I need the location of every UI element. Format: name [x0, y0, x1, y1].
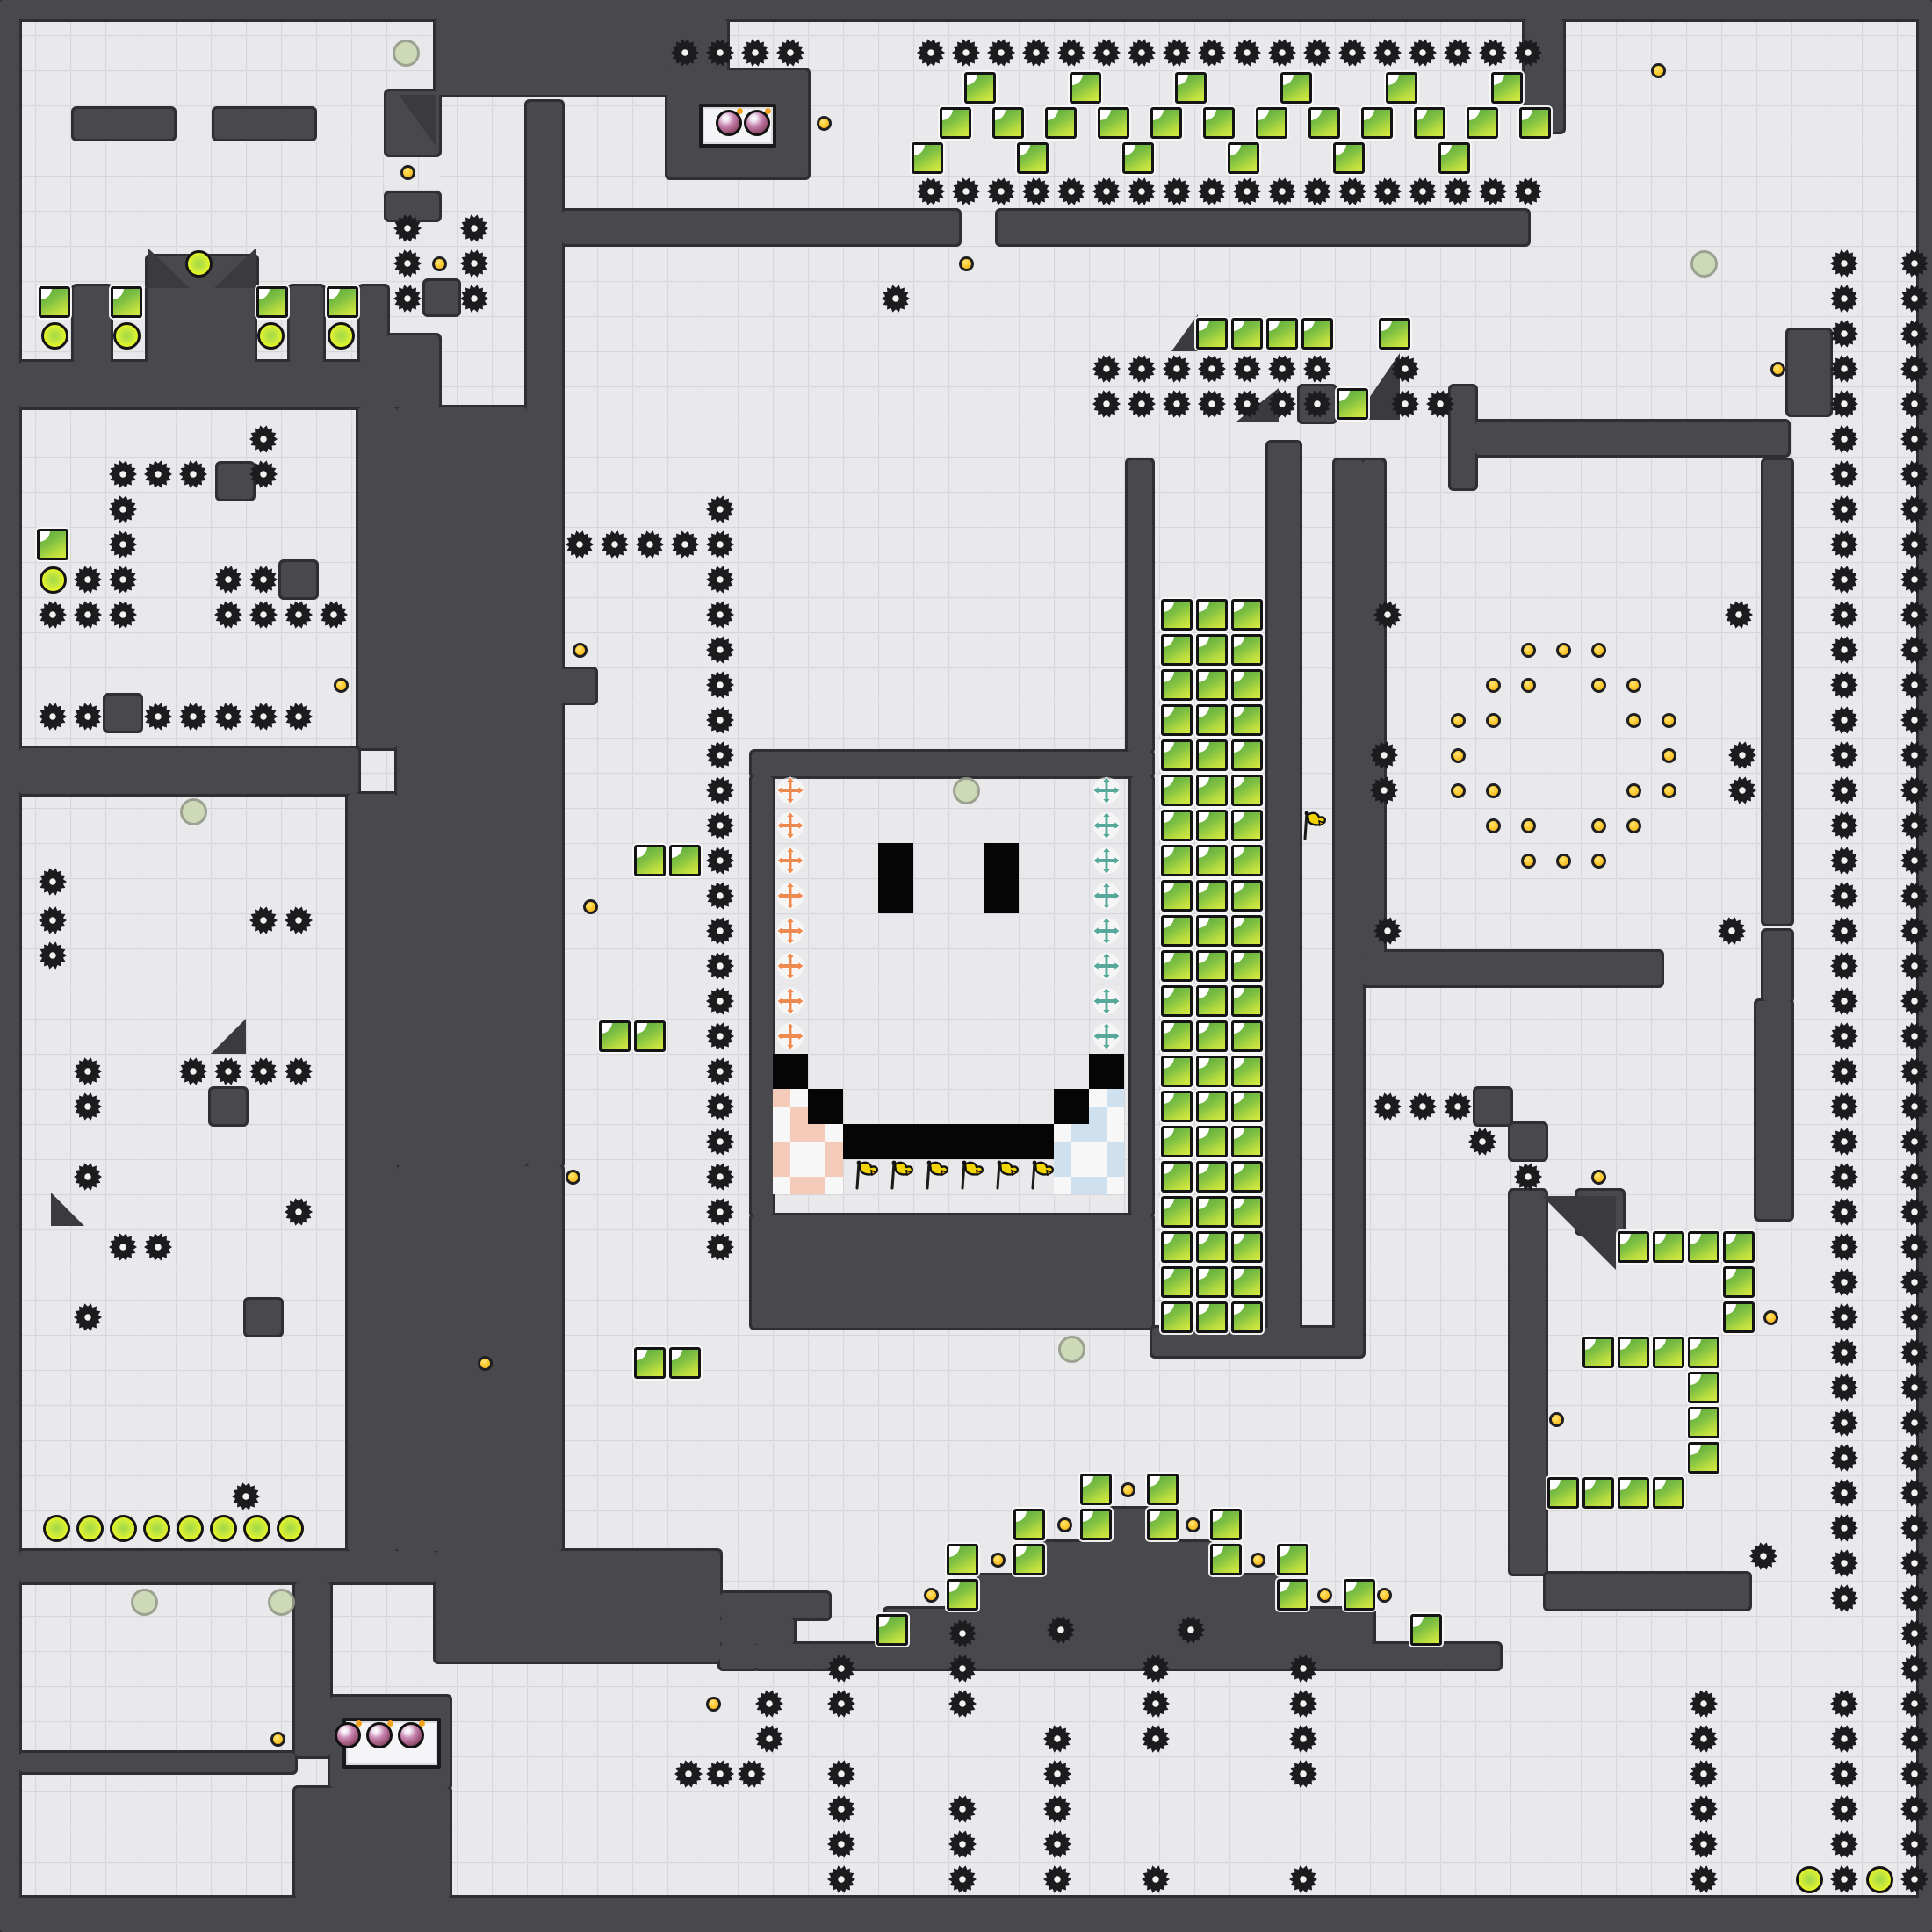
present-fold — [1198, 882, 1209, 893]
arrow-cross-teal-icon — [1092, 1021, 1121, 1051]
saw-blade-icon — [705, 600, 735, 630]
saw-blade-icon — [705, 1162, 735, 1192]
present-fold — [1163, 847, 1174, 858]
saw-blade-icon — [1829, 1127, 1859, 1157]
present-fold — [1338, 390, 1350, 401]
saw-blade-icon — [284, 1056, 314, 1086]
saw-blade-icon — [1900, 389, 1929, 419]
flag-icon — [1300, 810, 1331, 841]
present-box — [1582, 1477, 1614, 1509]
present-fold — [1345, 1581, 1357, 1592]
saw-blade-icon — [1232, 354, 1262, 384]
saw-blade-icon — [1829, 389, 1859, 419]
present-fold — [1268, 320, 1280, 331]
saw-blade-icon — [1829, 284, 1859, 314]
saw-blade-icon — [1829, 1267, 1859, 1297]
present-box — [1196, 775, 1228, 806]
present-box — [1203, 107, 1235, 139]
present-box — [1196, 880, 1228, 912]
present-fold — [1233, 601, 1244, 612]
present-fold — [1163, 952, 1174, 963]
checker-tile — [1054, 1159, 1089, 1194]
present-fold — [258, 288, 270, 299]
present-box — [1688, 1231, 1719, 1263]
present-box — [1210, 1544, 1242, 1575]
present-box — [1161, 1161, 1193, 1193]
saw-blade-icon — [948, 1829, 977, 1859]
big-coin — [40, 566, 67, 594]
present-fold — [1198, 952, 1209, 963]
saw-blade-icon — [670, 530, 700, 559]
arrow-cross-orange-icon — [775, 1021, 805, 1051]
checker-tile — [1054, 1124, 1089, 1159]
saw-blade-icon — [1829, 1373, 1859, 1402]
present-box — [669, 845, 701, 876]
saw-blade-icon — [459, 284, 489, 314]
big-coin — [185, 250, 213, 278]
coin — [583, 899, 598, 914]
present-box — [1491, 72, 1523, 104]
saw-blade-icon — [1900, 1864, 1929, 1894]
wall — [358, 407, 397, 748]
checker-tile — [773, 1159, 808, 1194]
present-fold — [1152, 109, 1164, 120]
coin — [1186, 1517, 1200, 1532]
saw-blade-icon — [1829, 1689, 1859, 1719]
arrow-cross-orange-icon — [775, 811, 805, 840]
saw-blade-icon — [1373, 1092, 1402, 1121]
coin — [1377, 1588, 1392, 1603]
saw-blade-icon — [826, 1864, 856, 1894]
present-fold — [941, 109, 953, 120]
saw-blade-icon — [38, 867, 68, 897]
present-box — [37, 529, 68, 560]
present-fold — [1619, 1233, 1631, 1244]
coin — [706, 1697, 721, 1712]
orb-spark-icon — [387, 1720, 393, 1727]
saw-blade-icon — [1900, 775, 1929, 805]
present-box — [1196, 810, 1228, 841]
saw-blade-icon — [231, 1481, 261, 1511]
present-fold — [1310, 109, 1322, 120]
present-fold — [601, 1022, 612, 1034]
present-fold — [1654, 1233, 1666, 1244]
saw-blade-icon — [1900, 1583, 1929, 1613]
saw-blade-icon — [178, 702, 208, 732]
saw-blade-icon — [1900, 1408, 1929, 1438]
wall — [281, 562, 316, 597]
present-fold — [1229, 144, 1241, 155]
saw-blade-icon — [1829, 1548, 1859, 1578]
coin — [1486, 818, 1501, 833]
present-box — [327, 286, 358, 318]
present-box — [1308, 107, 1340, 139]
present-box — [1196, 950, 1228, 982]
saw-blade-icon — [1900, 424, 1929, 454]
saw-blade-icon — [393, 284, 422, 314]
saw-blade-icon — [1829, 705, 1859, 735]
present-fold — [1198, 741, 1209, 753]
saw-blade-icon — [1373, 600, 1402, 630]
black-tile — [1054, 1089, 1089, 1124]
saw-blade-icon — [1337, 38, 1367, 68]
present-box — [1196, 1161, 1228, 1193]
present-box — [1161, 634, 1193, 666]
saw-blade-icon — [1042, 1759, 1072, 1789]
present-fold — [1690, 1444, 1701, 1455]
present-box — [1277, 1544, 1308, 1575]
black-tile — [1089, 1054, 1124, 1089]
saw-blade-icon — [1900, 249, 1929, 278]
present-box — [947, 1579, 978, 1611]
wall — [218, 464, 253, 499]
saw-blade-icon — [1829, 1337, 1859, 1367]
saw-blade-icon — [1176, 1615, 1206, 1645]
saw-blade-icon — [1829, 1408, 1859, 1438]
saw-blade-icon — [38, 600, 68, 630]
saw-blade-icon — [38, 905, 68, 935]
present-fold — [1233, 847, 1244, 858]
coin — [1556, 854, 1571, 869]
saw-blade-icon — [986, 38, 1016, 68]
saw-blade-icon — [1829, 1478, 1859, 1508]
saw-blade-icon — [1267, 177, 1297, 206]
present-fold — [1071, 74, 1083, 85]
arrow-cross-orange-icon — [775, 775, 805, 805]
present-box — [1723, 1266, 1755, 1298]
saw-blade-icon — [108, 1232, 138, 1262]
saw-blade-icon — [1724, 600, 1754, 630]
present-fold — [1690, 1233, 1701, 1244]
present-box — [1196, 1126, 1228, 1157]
spawn-circle — [953, 777, 980, 804]
saw-blade-icon — [1141, 1689, 1171, 1719]
present-fold — [1205, 109, 1216, 120]
saw-blade-icon — [1232, 177, 1262, 206]
present-fold — [1047, 109, 1058, 120]
saw-blade-icon — [1900, 565, 1929, 595]
coin — [1521, 643, 1536, 658]
present-box — [1231, 880, 1263, 912]
wall — [74, 109, 174, 139]
saw-blade-icon — [213, 600, 243, 630]
saw-blade-icon — [73, 1162, 103, 1192]
saw-blade-icon — [393, 213, 422, 243]
present-fold — [1493, 74, 1504, 85]
present-box — [1723, 1231, 1755, 1263]
present-fold — [1163, 601, 1174, 612]
present-box — [599, 1020, 631, 1052]
checker-tile — [773, 1124, 808, 1159]
present-box — [1379, 318, 1410, 350]
present-fold — [1233, 987, 1244, 998]
present-box — [1210, 1509, 1242, 1540]
saw-blade-icon — [249, 565, 278, 595]
present-box — [1122, 142, 1154, 174]
present-box — [1080, 1509, 1112, 1540]
present-fold — [1690, 1409, 1701, 1420]
saw-blade-icon — [1829, 249, 1859, 278]
present-box — [256, 286, 288, 318]
present-fold — [1163, 917, 1174, 928]
arrow-cross-orange-icon — [775, 986, 805, 1016]
saw-blade-icon — [1288, 1759, 1318, 1789]
present-box — [1196, 599, 1228, 631]
saw-blade-icon — [1829, 986, 1859, 1016]
saw-blade-icon — [916, 38, 946, 68]
present-fold — [1163, 1057, 1174, 1069]
saw-blade-icon — [1900, 1443, 1929, 1473]
saw-blade-icon — [1748, 1541, 1778, 1571]
saw-blade-icon — [1900, 1513, 1929, 1543]
saw-blade-icon — [705, 1232, 735, 1262]
present-box — [1361, 107, 1393, 139]
wall — [397, 407, 527, 1166]
present-box — [1688, 1372, 1719, 1403]
present-box — [1301, 318, 1333, 350]
present-fold — [1619, 1479, 1631, 1490]
black-tile — [773, 1054, 808, 1089]
coin — [1626, 678, 1641, 693]
present-fold — [1177, 74, 1188, 85]
present-box — [669, 1347, 701, 1379]
present-fold — [1363, 109, 1374, 120]
saw-blade-icon — [674, 1759, 703, 1789]
saw-blade-icon — [881, 284, 911, 314]
saw-blade-icon — [213, 702, 243, 732]
saw-blade-icon — [1232, 38, 1262, 68]
present-box — [1266, 318, 1298, 350]
level-board[interactable] — [0, 0, 1932, 1932]
saw-blade-icon — [705, 670, 735, 700]
saw-blade-icon — [916, 177, 946, 206]
coin — [1651, 63, 1666, 78]
coin — [478, 1356, 493, 1371]
saw-blade-icon — [705, 846, 735, 876]
saw-blade-icon — [705, 635, 735, 665]
present-box — [1045, 107, 1077, 139]
wall — [0, 1898, 1932, 1932]
coin — [432, 256, 447, 271]
coin — [1486, 678, 1501, 693]
present-fold — [1149, 1510, 1160, 1522]
present-box — [1688, 1337, 1719, 1368]
present-fold — [1015, 1546, 1027, 1557]
present-fold — [1163, 776, 1174, 788]
big-coin — [210, 1515, 237, 1542]
coin — [1521, 854, 1536, 869]
present-fold — [1198, 671, 1209, 682]
coin — [924, 1588, 939, 1603]
present-fold — [1233, 1128, 1244, 1139]
saw-blade-icon — [565, 530, 595, 559]
present-fold — [1082, 1475, 1093, 1487]
present-box — [1161, 739, 1193, 771]
present-box — [1231, 950, 1263, 982]
saw-blade-icon — [705, 916, 735, 946]
present-box — [1618, 1231, 1649, 1263]
wall — [755, 1644, 1500, 1669]
saw-blade-icon — [826, 1759, 856, 1789]
present-fold — [1015, 1510, 1027, 1522]
present-fold — [1233, 1092, 1244, 1104]
saw-blade-icon — [1900, 705, 1929, 735]
present-box — [1013, 1509, 1045, 1540]
present-fold — [994, 109, 1006, 120]
saw-blade-icon — [1373, 916, 1402, 946]
present-fold — [1163, 1198, 1174, 1209]
present-fold — [1233, 952, 1244, 963]
present-box — [1161, 1196, 1193, 1228]
saw-blade-icon — [1197, 177, 1227, 206]
present-fold — [1019, 144, 1030, 155]
saw-blade-icon — [705, 38, 735, 68]
saw-blade-icon — [1829, 1864, 1859, 1894]
present-box — [1231, 1091, 1263, 1122]
saw-blade-icon — [1162, 38, 1192, 68]
present-fold — [1198, 1198, 1209, 1209]
saw-blade-icon — [705, 986, 735, 1016]
big-coin — [277, 1515, 304, 1542]
saw-blade-icon — [1829, 424, 1859, 454]
present-fold — [1198, 1233, 1209, 1244]
coin — [1626, 713, 1641, 728]
present-fold — [948, 1581, 960, 1592]
saw-blade-icon — [1900, 1618, 1929, 1648]
wall — [1363, 460, 1384, 955]
wall — [720, 1644, 757, 1669]
checker-tile — [808, 1159, 843, 1194]
saw-blade-icon — [38, 941, 68, 970]
present-fold — [1388, 74, 1399, 85]
present-box — [1196, 985, 1228, 1017]
present-box — [1070, 72, 1101, 104]
wall — [1026, 1542, 1233, 1575]
saw-blade-icon — [1425, 389, 1455, 419]
ramp-tr-icon — [1542, 1196, 1616, 1270]
present-fold — [1124, 144, 1135, 155]
present-box — [1196, 1091, 1228, 1122]
saw-blade-icon — [1141, 1654, 1171, 1683]
present-box — [1231, 915, 1263, 947]
flag-icon — [852, 1159, 883, 1191]
saw-blade-icon — [1900, 1794, 1929, 1824]
present-fold — [1233, 320, 1244, 331]
saw-blade-icon — [948, 1864, 977, 1894]
saw-blade-icon — [1288, 1864, 1318, 1894]
spawn-circle — [180, 798, 207, 825]
saw-blade-icon — [1141, 1724, 1171, 1754]
present-fold — [1198, 706, 1209, 717]
saw-blade-icon — [1467, 1127, 1497, 1157]
saw-blade-icon — [284, 905, 314, 935]
saw-blade-icon — [178, 459, 208, 489]
present-fold — [1163, 741, 1174, 753]
present-fold — [1725, 1303, 1736, 1315]
present-fold — [1149, 1475, 1160, 1487]
saw-blade-icon — [1727, 740, 1757, 770]
present-box — [1161, 1020, 1193, 1052]
present-box — [39, 286, 70, 318]
present-fold — [1163, 1233, 1174, 1244]
present-box — [1196, 1020, 1228, 1052]
coin — [1662, 748, 1676, 763]
coin — [1251, 1553, 1265, 1568]
present-fold — [1654, 1479, 1666, 1490]
present-fold — [1198, 1163, 1209, 1174]
saw-blade-icon — [108, 600, 138, 630]
saw-blade-icon — [1900, 354, 1929, 384]
saw-blade-icon — [1056, 38, 1086, 68]
saw-blade-icon — [705, 1197, 735, 1227]
present-fold — [1198, 776, 1209, 788]
present-box — [1277, 1579, 1308, 1611]
saw-blade-icon — [948, 1794, 977, 1824]
coin — [1521, 678, 1536, 693]
saw-blade-icon — [1302, 354, 1332, 384]
orb-spark-icon — [356, 1720, 362, 1727]
spawn-circle — [1690, 250, 1718, 278]
arrow-cross-teal-icon — [1092, 881, 1121, 911]
saw-blade-icon — [1900, 916, 1929, 946]
present-fold — [1233, 1303, 1244, 1315]
present-fold — [1198, 917, 1209, 928]
saw-blade-icon — [1829, 530, 1859, 559]
saw-blade-icon — [1042, 1794, 1072, 1824]
coin — [1591, 854, 1606, 869]
wall — [211, 1089, 246, 1124]
present-box — [912, 142, 943, 174]
saw-blade-icon — [1900, 670, 1929, 700]
wall — [1763, 931, 1791, 1001]
coin — [817, 116, 832, 131]
saw-blade-icon — [1513, 38, 1543, 68]
present-fold — [1163, 706, 1174, 717]
present-fold — [1412, 1616, 1424, 1627]
spawn-circle — [268, 1589, 295, 1616]
saw-blade-icon — [1900, 635, 1929, 665]
present-box — [1231, 1161, 1263, 1193]
present-box — [1161, 985, 1193, 1017]
saw-blade-icon — [705, 494, 735, 524]
saw-blade-icon — [1369, 740, 1399, 770]
arrow-cross-teal-icon — [1092, 986, 1121, 1016]
present-fold — [39, 530, 50, 542]
present-box — [1196, 915, 1228, 947]
present-box — [1147, 1474, 1179, 1505]
present-box — [1196, 1301, 1228, 1333]
saw-blade-icon — [393, 249, 422, 278]
present-fold — [1198, 1057, 1209, 1069]
wall — [19, 1551, 436, 1582]
saw-blade-icon — [1513, 1162, 1543, 1192]
present-box — [1653, 1337, 1684, 1368]
saw-blade-icon — [1162, 389, 1192, 419]
purple-orb — [398, 1722, 424, 1748]
ramp-bl-icon — [51, 1193, 84, 1226]
present-box — [1688, 1442, 1719, 1474]
saw-blade-icon — [1900, 1373, 1929, 1402]
saw-blade-icon — [705, 775, 735, 805]
saw-blade-icon — [1900, 600, 1929, 630]
present-box — [1196, 1266, 1228, 1298]
saw-blade-icon — [1900, 811, 1929, 840]
saw-blade-icon — [1900, 1232, 1929, 1262]
saw-blade-icon — [1829, 1056, 1859, 1086]
saw-blade-icon — [1267, 354, 1297, 384]
saw-blade-icon — [951, 177, 981, 206]
saw-blade-icon — [1337, 177, 1367, 206]
